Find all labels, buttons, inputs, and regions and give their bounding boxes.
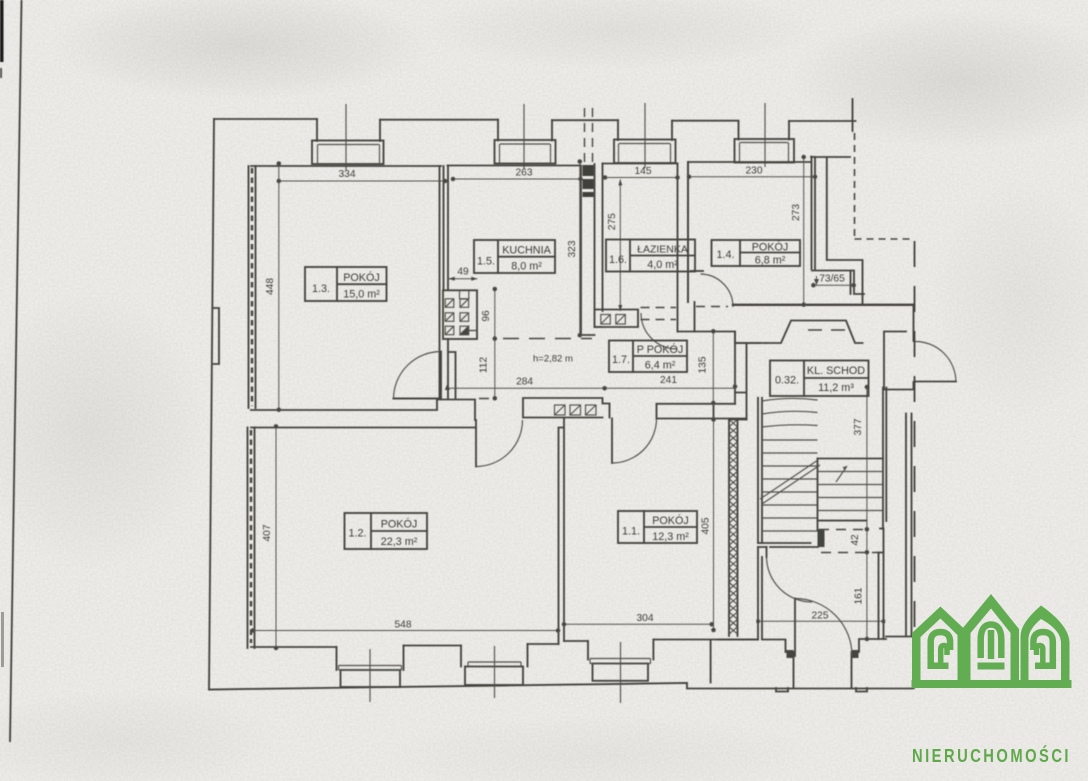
svg-text:323: 323 [567,240,578,257]
svg-text:225: 225 [812,611,829,622]
svg-text:ŁAZIENKA: ŁAZIENKA [637,244,688,256]
svg-text:161: 161 [854,587,865,604]
svg-text:6,8 m²: 6,8 m² [755,255,786,267]
svg-text:448: 448 [265,278,276,295]
svg-text:135: 135 [698,356,709,373]
svg-text:1.5.: 1.5. [477,256,495,268]
svg-text:15,0 m²: 15,0 m² [343,289,380,301]
svg-text:KL. SCHOD: KL. SCHOD [807,365,865,377]
svg-text:4,0 m²: 4,0 m² [647,259,678,271]
svg-text:1.3.: 1.3. [312,283,330,295]
svg-text:h=2,82 m: h=2,82 m [533,354,573,365]
svg-text:POKÓJ: POKÓJ [752,241,789,254]
svg-text:12,3 m²: 12,3 m² [652,531,689,543]
svg-text:548: 548 [395,620,412,631]
svg-text:273: 273 [791,204,802,221]
svg-text:8,0 m²: 8,0 m² [511,261,542,273]
svg-text:POKÓJ: POKÓJ [381,518,418,531]
svg-text:1.1.: 1.1. [622,526,640,538]
svg-text:1.4.: 1.4. [716,249,734,261]
svg-text:1.6.: 1.6. [609,254,627,266]
svg-text:407: 407 [262,524,273,541]
svg-text:POKÓJ: POKÓJ [652,514,689,527]
svg-text:0.32.: 0.32. [775,375,799,387]
svg-text:230: 230 [746,166,763,177]
svg-text:1.7.: 1.7. [612,354,630,366]
svg-text:6,4 m²: 6,4 m² [645,360,676,372]
svg-text:241: 241 [660,375,677,386]
svg-text:304: 304 [637,613,654,624]
svg-text:96: 96 [481,310,492,322]
svg-text:405: 405 [701,517,712,534]
svg-text:42: 42 [850,534,861,546]
svg-text:POKÓJ: POKÓJ [343,271,380,284]
svg-text:NIERUCHOMOŚCI: NIERUCHOMOŚCI [912,745,1071,766]
svg-text:22,3 m²: 22,3 m² [381,536,418,548]
svg-text:112: 112 [479,357,490,374]
svg-text:263: 263 [516,168,533,179]
svg-text:334: 334 [339,169,356,180]
svg-text:377: 377 [853,418,864,435]
svg-text:11,2 m³: 11,2 m³ [818,382,854,394]
svg-text:KUCHNIA: KUCHNIA [502,245,551,257]
svg-text:275: 275 [607,213,618,230]
svg-text:49: 49 [457,267,469,278]
svg-text:73/65: 73/65 [819,274,845,285]
svg-text:1.2.: 1.2. [348,528,366,540]
svg-text:145: 145 [635,166,652,177]
svg-text:284: 284 [516,377,533,388]
svg-text:P POKÓJ: P POKÓJ [637,343,684,356]
